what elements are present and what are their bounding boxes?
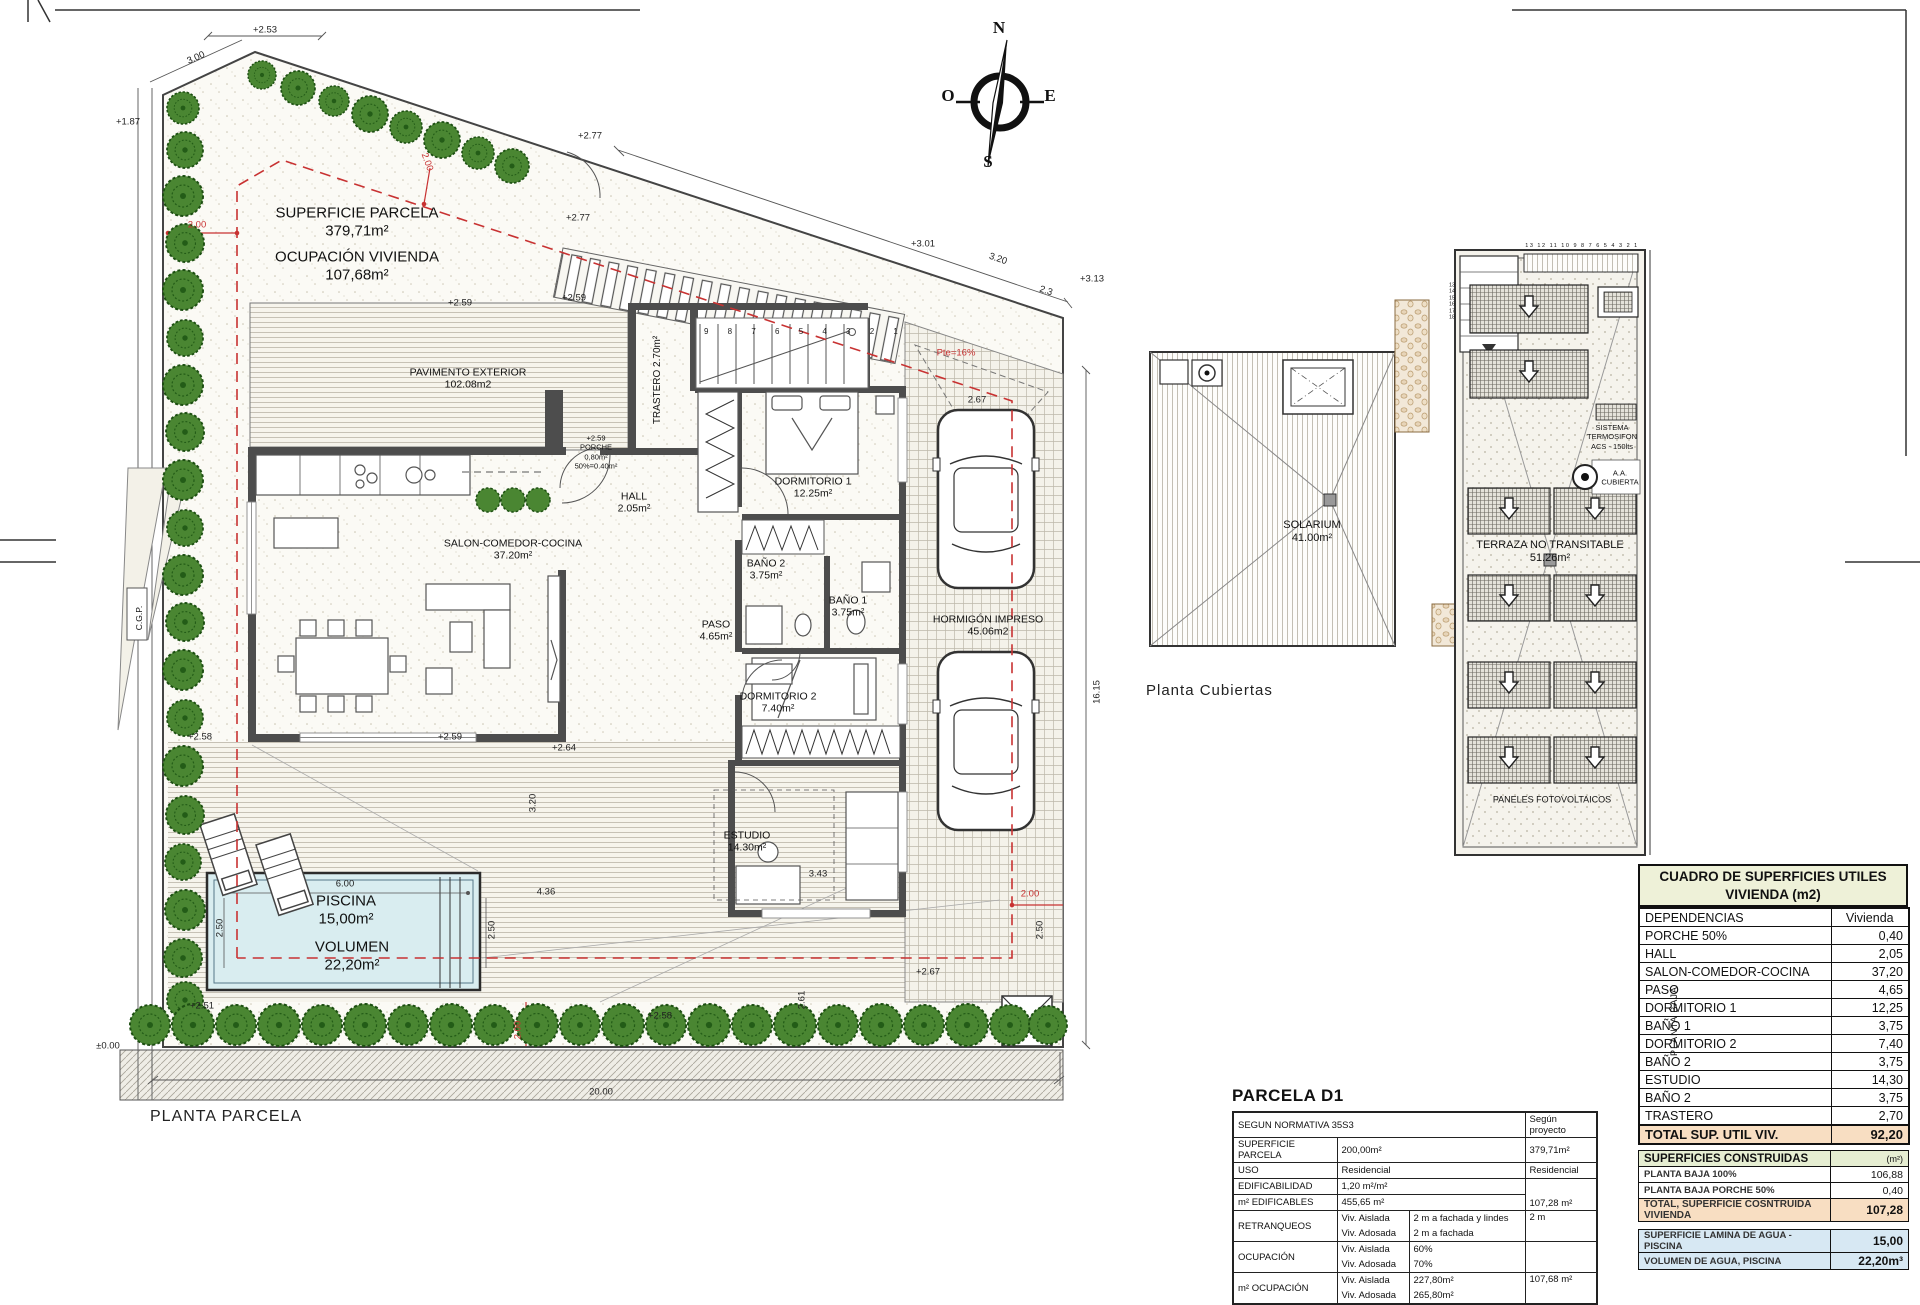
dim-label: 2.00 [513, 1021, 524, 1040]
table-cell: SALON-COMEDOR-COCINA [1639, 963, 1831, 981]
section-header: SUPERFICIES CONSTRUIDAS [1639, 1151, 1831, 1167]
table-cell: Según proyecto [1525, 1112, 1597, 1138]
car [933, 652, 1039, 830]
table-cell: 200,00m² [1337, 1138, 1525, 1163]
table-cell: 455,65 m² [1337, 1195, 1525, 1211]
table-cell: EDIFICABILIDAD [1233, 1179, 1337, 1195]
table-cell: 12,25 [1831, 999, 1909, 1017]
compass-east-label: E [1044, 86, 1055, 106]
table-cell: 15,00 [1831, 1230, 1909, 1253]
pool-label: PISCINA15,00m² [316, 892, 376, 927]
table-cell: HALL [1639, 945, 1831, 963]
dim-label: +2.58 [188, 732, 212, 743]
dim-label: 2.50 [487, 921, 498, 940]
table-header: DEPENDENCIAS [1639, 908, 1831, 927]
table-cell: 106,88 [1831, 1167, 1909, 1183]
table-cell: m² OCUPACIÓN [1233, 1273, 1337, 1305]
table-cell: VOLUMEN DE AGUA, PISCINA [1639, 1253, 1831, 1270]
table-cell: PASO [1639, 981, 1831, 999]
table-header: Vivienda [1831, 908, 1909, 927]
table-cell: 0,40 [1831, 1183, 1909, 1199]
dim-label: 3.43 [809, 869, 828, 880]
dim-label: +2.59 [562, 293, 586, 304]
plan-drawing [0, 0, 1920, 1280]
table-cell: Viv. Aislada [1337, 1273, 1409, 1289]
table-cell: 3,75 [1831, 1053, 1909, 1071]
roof-top-numbers: 13 12 11 10 9 8 7 6 5 4 3 2 1 [1525, 243, 1638, 249]
dim-label: +2.58 [648, 1011, 672, 1022]
table-cell: PLANTA BAJA 100% [1639, 1167, 1831, 1183]
total-row-value: 92,20 [1831, 1125, 1909, 1144]
room-label-dormitorio2: DORMITORIO 27.40m² [740, 691, 817, 716]
compass-west-label: O [941, 86, 954, 106]
aa-cubierta-label: A.A.CUBIERTA [1601, 469, 1638, 488]
roof-stair-numbers: 13 14 15 16 17 18 [1449, 283, 1455, 322]
table-cell: Viv. Adosada [1337, 1288, 1409, 1304]
table-cell: Residencial [1337, 1163, 1525, 1179]
dim-label: +2.59 [438, 732, 462, 743]
table-cell: 22,20m³ [1831, 1253, 1909, 1270]
total-row-value: 107,28 [1831, 1199, 1909, 1222]
table-cell: 2 m a fachada [1409, 1226, 1525, 1242]
table-cell [1525, 1242, 1597, 1273]
table-cell: 4,65 [1831, 981, 1909, 999]
dim-label: 2.00 [1021, 889, 1040, 900]
sistema-termosifon-label: SISTEMATERMOSIFONACS - 150lts [1587, 423, 1637, 451]
dim-label: +2.77 [578, 131, 602, 142]
table-cell: BAÑO 2 [1639, 1053, 1831, 1071]
car [933, 410, 1039, 588]
dim-label: +2.53 [253, 25, 277, 36]
table-cell: DORMITORIO 1 [1639, 999, 1831, 1017]
compass-south-label: S [983, 152, 992, 172]
table-cell: SUPERFICIE LAMINA DE AGUA - PISCINA [1639, 1230, 1831, 1253]
total-row-label: TOTAL, SUPERFICIE COSNTRUIDA VIVIENDA [1639, 1199, 1831, 1222]
table-cell: Viv. Adosada [1337, 1226, 1409, 1242]
table-cell: 1,20 m²/m² [1337, 1179, 1525, 1195]
room-label-bano2: BAÑO 23.75m² [747, 558, 786, 583]
table-cell: 2 m a fachada y lindes [1409, 1211, 1525, 1227]
dim-label: 2.61 [797, 991, 808, 1010]
table-cell: RETRANQUEOS [1233, 1211, 1337, 1242]
table-cell: SEGUN NORMATIVA 35S3 [1233, 1112, 1525, 1138]
table-cell: Viv. Aislada [1337, 1242, 1409, 1258]
table-cell: BAÑO 2 [1639, 1089, 1831, 1107]
terraza-label: TERRAZA NO TRANSITABLE51.26m² [1476, 539, 1624, 565]
dim-label: 2.67 [968, 395, 987, 406]
room-label-paso: PASO4.65m² [700, 619, 733, 644]
table-cell: TRASTERO [1639, 1107, 1831, 1126]
dim-label: +2.77 [566, 213, 590, 224]
solarium-label: SOLARIUM41.00m² [1283, 519, 1340, 545]
dim-label: +3.01 [911, 239, 935, 250]
room-label-hormigon: HORMIGÓN IMPRESO45.06m2 [933, 614, 1043, 639]
table-cell: BAÑO 1 [1639, 1017, 1831, 1035]
table-cell: Viv. Aislada [1337, 1211, 1409, 1227]
table-cell: PORCHE 50% [1639, 927, 1831, 945]
dim-label: +2.51 [190, 1001, 214, 1012]
table-cell: DORMITORIO 2 [1639, 1035, 1831, 1053]
dim-label: 16.15 [1092, 680, 1103, 704]
table-cell: OCUPACIÓN [1233, 1242, 1337, 1273]
dim-label: 4.36 [537, 887, 556, 898]
architectural-sheet: SUPERFICIE PARCELA379,71m² OCUPACIÓN VIV… [0, 0, 1920, 1280]
site-plan-title: PLANTA PARCELA [150, 1108, 302, 1126]
cuadro-title: CUADRO DE SUPERFICIES UTILESVIVIENDA (m2… [1638, 864, 1908, 907]
paneles-label: PANELES FOTOVOLTAICOS [1493, 795, 1611, 806]
table-cell: 107,28 m² [1525, 1179, 1597, 1211]
table-cell: 227,80m² [1409, 1273, 1525, 1289]
room-label-hall: HALL2.05m² [618, 491, 651, 516]
table-cell: 2 m [1525, 1211, 1597, 1242]
solarium-roof [1150, 300, 1492, 646]
room-label-pavimento: PAVIMENTO EXTERIOR102.08m2 [410, 367, 527, 392]
table-cell: m² EDIFICABLES [1233, 1195, 1337, 1211]
stair-numbers: 9 8 7 6 5 4 3 2 1 [704, 327, 906, 336]
pool-volume-label: VOLUMEN22,20m² [315, 938, 389, 973]
dim-label: +2.59 [448, 298, 472, 309]
cgp-label: C.G.P. [134, 606, 144, 630]
dim-label: 2.00 [188, 220, 207, 231]
dim-label: 20.00 [589, 1087, 613, 1098]
table-cell: 2,70 [1831, 1107, 1909, 1126]
dim-label: +1.87 [116, 117, 140, 128]
table-cell: 379,71m² [1525, 1138, 1597, 1163]
dim-label: +2.67 [916, 967, 940, 978]
section-unit: (m²) [1831, 1151, 1909, 1167]
roof-plan-title: Planta Cubiertas [1146, 682, 1273, 699]
table-cell: USO [1233, 1163, 1337, 1179]
table-cell: 37,20 [1831, 963, 1909, 981]
dim-label: 2.50 [215, 919, 226, 938]
table-cell: Viv. Adosada [1337, 1257, 1409, 1273]
table-cell: 2,05 [1831, 945, 1909, 963]
table-cell: 14,30 [1831, 1071, 1909, 1089]
room-label-bano1: BAÑO 13.75m² [829, 595, 868, 620]
table-cell: 107,68 m² [1525, 1273, 1597, 1305]
table-cell: 265,80m² [1409, 1288, 1525, 1304]
parcel-occupation-note: OCUPACIÓN VIVIENDA107,68m² [275, 248, 439, 283]
dim-label: ±0.00 [96, 1041, 120, 1052]
table-cell: 7,40 [1831, 1035, 1909, 1053]
dim-label: 3.20 [528, 794, 539, 813]
table-cell: 3,75 [1831, 1089, 1909, 1107]
dim-label: +2.64 [552, 743, 576, 754]
compass-north-label: N [993, 18, 1005, 38]
dim-label: +3.13 [1080, 274, 1104, 285]
table-cell: SUPERFICIE PARCELA [1233, 1138, 1337, 1163]
table-cell: Residencial [1525, 1163, 1597, 1179]
room-label-estudio: ESTUDIO14.30m² [724, 830, 771, 855]
slope-label: Pte=16% [937, 348, 976, 359]
table-cell: 3,75 [1831, 1017, 1909, 1035]
total-row-label: TOTAL SUP. UTIL VIV. [1639, 1125, 1831, 1144]
table-cell: 60% [1409, 1242, 1525, 1258]
table-cell: PLANTA BAJA PORCHE 50% [1639, 1183, 1831, 1199]
dim-label: 2.50 [1035, 921, 1046, 940]
room-label-trastero: TRASTERO 2.70m² [652, 336, 664, 424]
parcela-d1-table: PARCELA D1 SEGUN NORMATIVA 35S3Según pro… [1232, 1086, 1596, 1305]
cuadro-superficies-table: CUADRO DE SUPERFICIES UTILESVIVIENDA (m2… [1638, 864, 1908, 1270]
table-cell: 70% [1409, 1257, 1525, 1273]
table-cell: 0,40 [1831, 927, 1909, 945]
room-label-dormitorio1: DORMITORIO 112.25m² [775, 476, 852, 501]
dim-label: 6.00 [336, 879, 355, 890]
table-cell: ESTUDIO [1639, 1071, 1831, 1089]
room-label-salon: SALON-COMEDOR-COCINA37.20m² [444, 538, 582, 563]
compass-icon [956, 40, 1044, 166]
parcel-surface-note: SUPERFICIE PARCELA379,71m² [275, 204, 438, 239]
parcela-table-title: PARCELA D1 [1232, 1086, 1596, 1106]
room-label-porche: +2.59PORCHE0,80m²50%=0.40m² [575, 433, 618, 471]
